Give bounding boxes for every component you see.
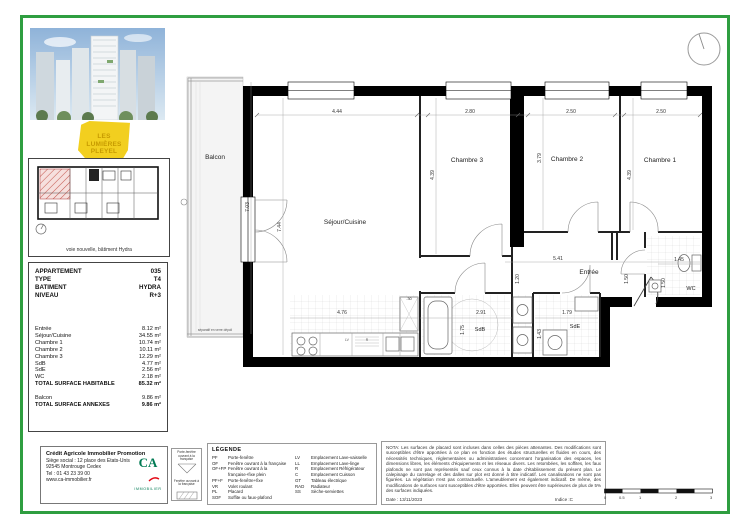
- ca-logo-red-swoosh: [135, 477, 161, 482]
- dim-ch1-w: 2.50: [656, 109, 666, 115]
- window-legend-item: Fenêtre ouvrant à la française: [173, 480, 200, 487]
- total-habitable-row: TOTAL SURFACE HABITABLE85.32 m²: [35, 381, 161, 388]
- apartment-info-box: APPARTEMENT035 TYPET4 BATIMENTHYDRA NIVE…: [28, 262, 168, 432]
- building-photo: [30, 28, 165, 120]
- info-row: NIVEAUR+3: [35, 292, 161, 300]
- legend-item: SSSèche-serviettes: [295, 489, 372, 495]
- dim-entree-w: 5.41: [553, 256, 563, 262]
- legend-left-column: PFPorte-fenêtre OFFenêtre ouvrant à la f…: [212, 455, 289, 501]
- room-label-sdb: SdB: [475, 327, 486, 333]
- dim-wc-w: 1.45: [674, 257, 684, 263]
- room-label-sde: SdE: [570, 324, 581, 330]
- legend-box: LÉGENDE PFPorte-fenêtre OFFenêtre ouvran…: [207, 443, 377, 505]
- dim-ch3-w: 2.80: [465, 109, 475, 115]
- scale-label: 0: [604, 495, 607, 500]
- building-photo-art: [30, 28, 165, 120]
- balcony: [181, 77, 243, 337]
- area-row: Chambre 312.29 m²: [35, 354, 161, 361]
- dim-sejour-w: 4.44: [332, 109, 342, 115]
- nota-indice: Indice :C: [555, 497, 573, 502]
- room-label-sejour: Séjour/Cuisine: [324, 219, 367, 226]
- dim-kitchen-d: .30: [406, 296, 412, 301]
- info-row: BATIMENTHYDRA: [35, 284, 161, 292]
- legend-right-column: LVEmplacement Lave-vaisselle LLEmplaceme…: [295, 455, 372, 501]
- site-plan-drawing: [29, 159, 167, 239]
- project-logo-line: LES: [97, 133, 110, 141]
- dim-entree-d1: 1.20: [515, 274, 521, 284]
- scale-bar: 0 0.5 1 2 3: [604, 488, 716, 502]
- area-row: Chambre 110.74 m²: [35, 340, 161, 347]
- room-label-chambre2: Chambre 2: [551, 156, 584, 163]
- hatched-window-symbol: [176, 491, 198, 500]
- dim-wc-h: 1.50: [661, 278, 667, 288]
- dim-ch2-w: 2.50: [566, 109, 576, 115]
- area-row: SdE2.56 m²: [35, 367, 161, 374]
- legend-item: OF+FPFenêtre ouvrant à la française+fixe…: [212, 466, 289, 477]
- nota-date: Date : 13/11/2023: [386, 497, 422, 502]
- scale-bar-graphic: 0 0.5 1 2 3: [604, 488, 716, 502]
- dim-ch2-h: 3.79: [537, 153, 543, 163]
- area-row: Chambre 210.11 m²: [35, 347, 161, 354]
- dim-sde-h: 1.43: [537, 329, 543, 339]
- dim-ch1-h: 4.39: [627, 170, 633, 180]
- dim-sde-w: 1.79: [562, 310, 572, 316]
- nota-text: NOTA: Les surfaces de placard sont inclu…: [386, 445, 601, 494]
- ca-immobilier-logo: CA IMMOBILIER: [133, 457, 163, 491]
- room-label-chambre3: Chambre 3: [451, 157, 484, 164]
- project-logo-line: PLEYEL: [91, 148, 117, 156]
- area-row: Séjour/Cuisine34.55 m²: [35, 333, 161, 340]
- ca-logo-subtext: IMMOBILIER: [133, 487, 163, 491]
- area-row: SdB4.77 m²: [35, 361, 161, 368]
- dim-sdb-h: 1.75: [460, 325, 466, 335]
- dim-ch3-h: 4.39: [430, 170, 436, 180]
- scale-label: 0.5: [619, 495, 625, 500]
- area-row: Entrée8.12 m²: [35, 326, 161, 333]
- window-legend-item: Porte-fenêtre ouvrant à la française: [173, 451, 200, 462]
- project-logo-line: LUMIÈRES: [86, 141, 121, 149]
- room-label-balcon: Balcon: [205, 154, 225, 161]
- total-annexes-row: TOTAL SURFACE ANNEXES9.86 m²: [35, 402, 161, 409]
- dim-balcon-h: 7.03: [245, 202, 251, 212]
- room-label-chambre1: Chambre 1: [644, 157, 677, 164]
- info-row: APPARTEMENT035: [35, 268, 161, 276]
- ca-logo-letters: CA: [133, 457, 163, 469]
- scale-label: 2: [675, 495, 678, 500]
- window-type-legend: Porte-fenêtre ouvrant à la française Fen…: [171, 448, 202, 501]
- floor-plan: Balcon Séjour/Cuisine Chambre 3 Chambre …: [180, 55, 720, 395]
- dim-kitchen-w: 4.76: [337, 310, 347, 316]
- dim-entree-d2: 1.50: [624, 274, 630, 284]
- room-label-wc: WC: [686, 286, 695, 292]
- room-label-entree: Entrée: [579, 269, 599, 276]
- door-swing-symbol: [176, 463, 198, 475]
- plan-sheet: LES LUMIÈRES PLEYEL voie nouvelle, bâ: [0, 0, 750, 530]
- dim-sdb-w: 2.91: [476, 310, 486, 316]
- site-plan-box: voie nouvelle, bâtiment Hydra: [28, 158, 170, 257]
- dim-sejour-h: 7.44: [277, 222, 283, 232]
- legend-item: SOFSoffite ou faux-plafond: [212, 495, 289, 501]
- info-row: TYPET4: [35, 276, 161, 284]
- site-plan-caption: voie nouvelle, bâtiment Hydra: [29, 247, 169, 253]
- nota-box: NOTA: Les surfaces de placard sont inclu…: [381, 441, 606, 505]
- scale-label: 3: [710, 495, 713, 500]
- glass-divider-note: séparatif en verre dépoli: [198, 328, 232, 332]
- legend-title: LÉGENDE: [212, 447, 372, 453]
- scale-label: 1: [639, 495, 642, 500]
- promoter-box: Crédit Agricole Immobilier Promotion Siè…: [40, 446, 168, 504]
